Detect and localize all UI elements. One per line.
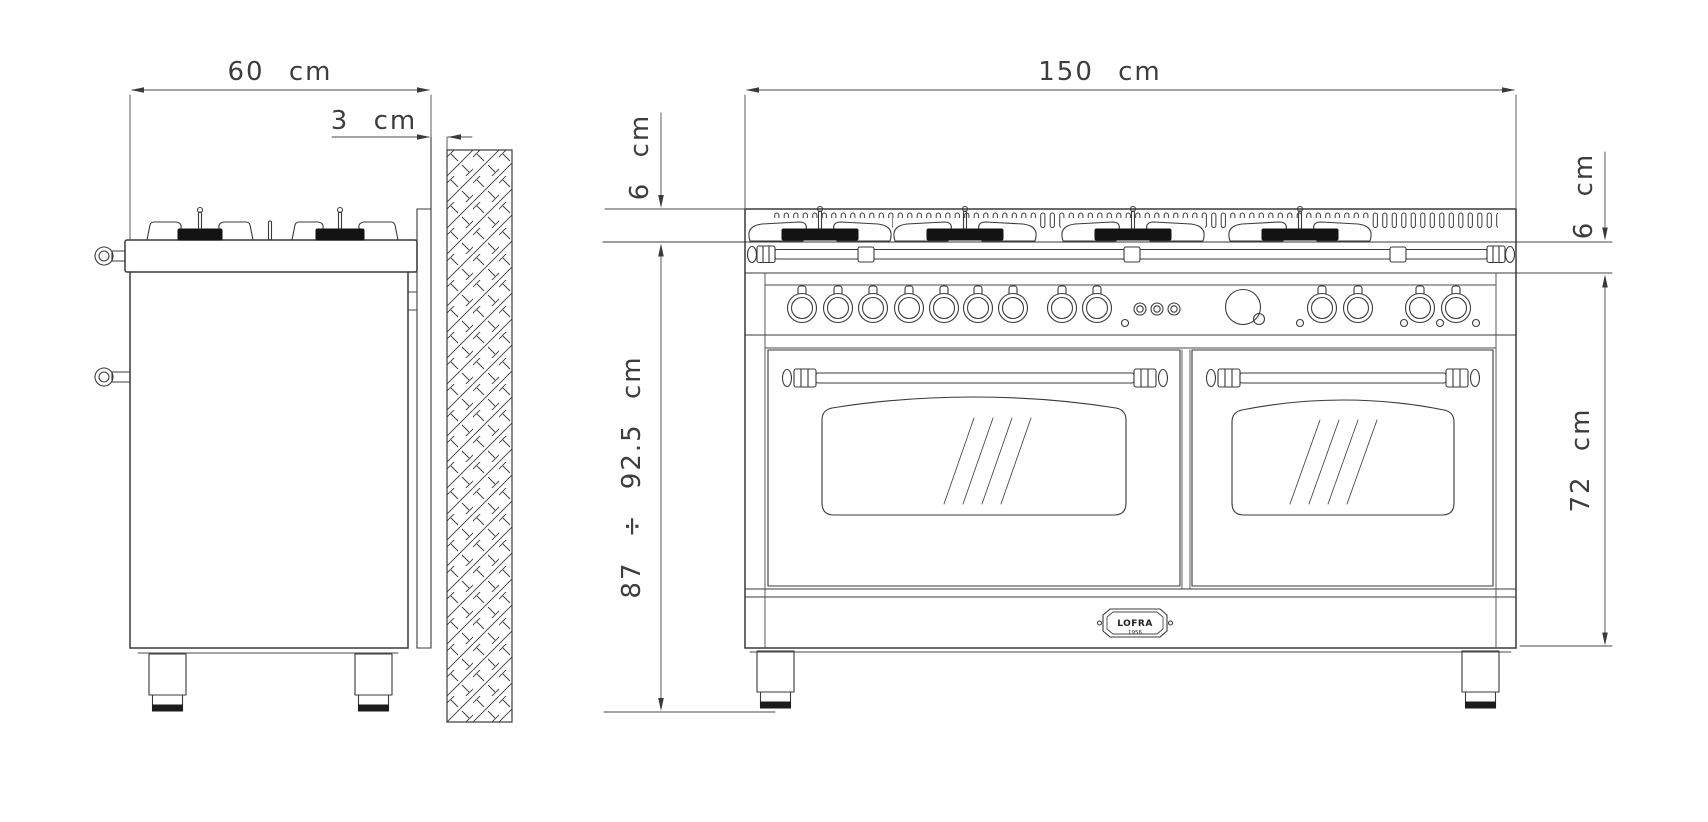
dim-wall-gap-3: 3 cm <box>331 106 472 150</box>
front-leg-right <box>1462 651 1499 708</box>
oven-divider <box>1182 350 1190 589</box>
range-cooker-technical-drawing: 60 cm 3 cm <box>0 0 1708 822</box>
dim-overall-height: 87 ÷ 92.5 cm <box>604 244 775 713</box>
technical-drawing-page: 60 cm 3 cm <box>0 0 1708 822</box>
burner-1 <box>748 207 892 242</box>
oven-door-left <box>768 350 1180 586</box>
wall-section <box>447 150 512 722</box>
dim-label-overall-height: 87 ÷ 92.5 cm <box>617 355 647 598</box>
control-panel <box>788 286 1480 327</box>
side-hob <box>95 240 417 272</box>
badge-year-text: 1956 <box>1128 630 1142 636</box>
burner-3 <box>1061 207 1205 242</box>
oven-door-right <box>1192 350 1493 586</box>
side-grate-finger <box>269 221 272 240</box>
rail-support <box>858 247 874 262</box>
towel-rail <box>748 246 1515 263</box>
dim-backguard-right-6: 6 cm <box>1569 152 1608 241</box>
oven-door-right-handle <box>1207 369 1480 387</box>
control-knob <box>859 286 888 323</box>
control-knob <box>1344 286 1373 323</box>
dim-width-150: 150 cm <box>745 57 1516 209</box>
rail-support <box>1124 247 1140 262</box>
dim-label-backguard-right: 6 cm <box>1569 153 1599 239</box>
dim-backguard-left-6: 6 cm <box>625 113 664 208</box>
dim-depth-60: 60 cm <box>130 57 431 240</box>
side-back-panel <box>408 137 431 648</box>
front-view: LOFRA 1956 150 cm 6 cm 6 cm <box>603 57 1612 712</box>
oven-window-left <box>822 397 1126 515</box>
clock-timer <box>1226 290 1265 325</box>
wall-hatch <box>447 150 512 722</box>
side-burner-left <box>147 208 253 241</box>
towel-rail-end-knob <box>95 247 125 265</box>
dim-label-wall-gap: 3 cm <box>331 106 417 136</box>
side-leg-front <box>149 654 186 711</box>
control-knob <box>1048 286 1077 323</box>
window-reflection <box>944 418 1031 504</box>
side-view: 60 cm 3 cm <box>95 57 512 722</box>
burner-2 <box>893 207 1037 242</box>
burner-4 <box>1228 207 1372 242</box>
control-knob <box>1406 286 1435 323</box>
dim-label-backguard-left: 6 cm <box>625 114 655 200</box>
side-burner-right <box>292 208 398 241</box>
oven-window-right <box>1232 400 1454 515</box>
control-knob <box>788 286 817 323</box>
control-knob <box>1442 286 1471 323</box>
dim-oven-height-72: 72 cm <box>1566 275 1608 646</box>
oven-door-left-handle <box>783 369 1168 387</box>
side-body <box>95 272 408 653</box>
dim-label-depth: 60 cm <box>228 57 333 87</box>
control-knob <box>999 286 1028 323</box>
dim-label-oven-height: 72 cm <box>1566 408 1596 513</box>
front-leg-left <box>757 651 794 708</box>
control-knob <box>1083 286 1112 323</box>
control-knob <box>930 286 959 323</box>
rail-support <box>1390 247 1406 262</box>
control-knob <box>895 286 924 323</box>
brand-badge: LOFRA 1956 <box>1098 609 1173 637</box>
side-leg-back <box>355 654 392 711</box>
control-knob <box>824 286 853 323</box>
door-handle-end-knob <box>95 368 130 386</box>
control-knob <box>964 286 993 323</box>
push-buttons <box>1134 303 1180 315</box>
control-knob <box>1308 286 1337 323</box>
dim-label-width: 150 cm <box>1038 57 1162 87</box>
badge-brand-text: LOFRA <box>1117 619 1153 629</box>
window-reflection <box>1290 420 1377 504</box>
